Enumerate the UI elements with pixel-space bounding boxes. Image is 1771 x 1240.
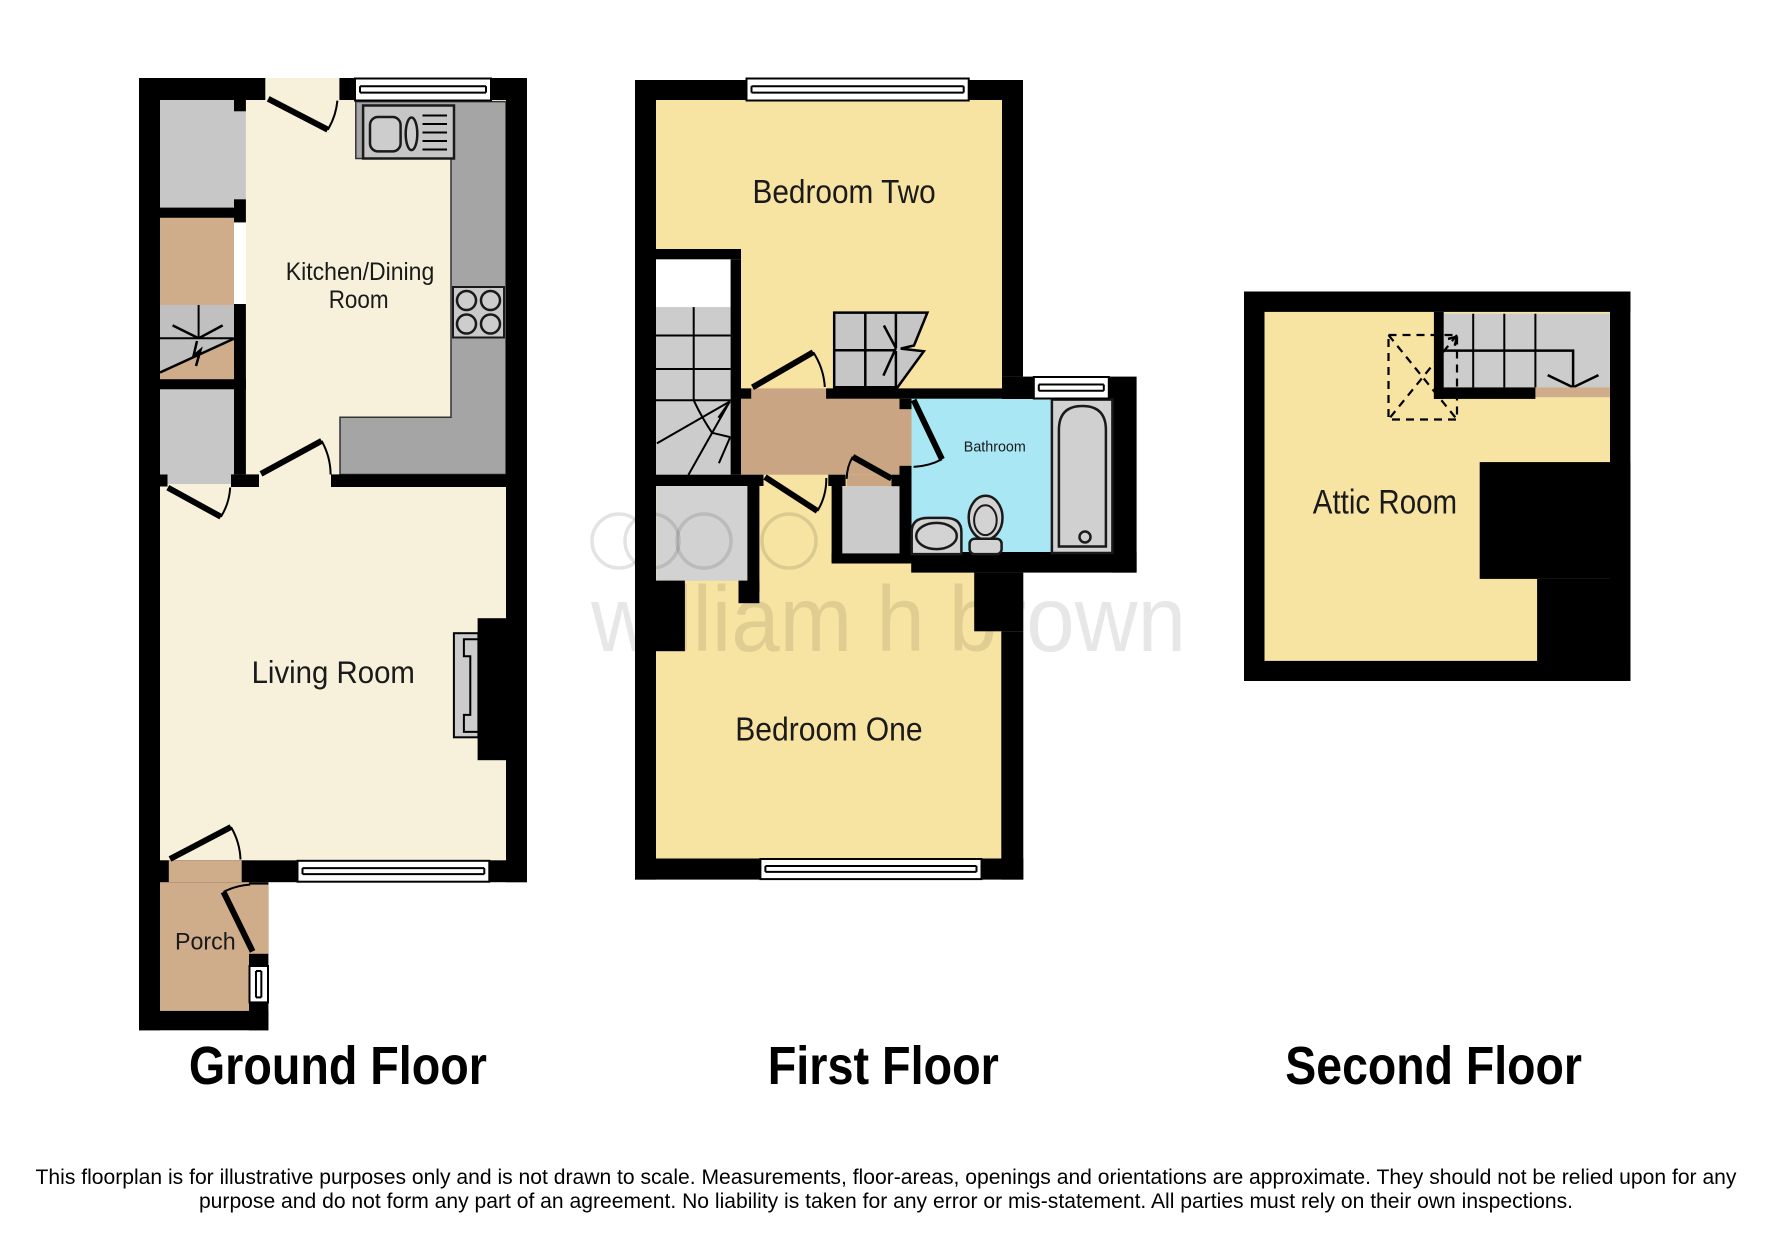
svg-text:This floorplan is for illustra: This floorplan is for illustrative purpo…: [36, 1166, 1737, 1189]
svg-text:Second Floor: Second Floor: [1285, 1037, 1582, 1096]
svg-text:First Floor: First Floor: [768, 1037, 999, 1096]
svg-text:Bathroom: Bathroom: [964, 440, 1026, 456]
svg-text:Kitchen/Dining: Kitchen/Dining: [286, 258, 435, 286]
svg-text:Bedroom One: Bedroom One: [735, 712, 922, 749]
svg-text:Ground Floor: Ground Floor: [189, 1037, 487, 1096]
svg-text:Room: Room: [329, 286, 389, 314]
svg-text:william h brown: william h brown: [590, 567, 1186, 671]
svg-text:Living Room: Living Room: [252, 654, 415, 690]
svg-text:purpose and do not form any pa: purpose and do not form any part of an a…: [199, 1190, 1573, 1213]
svg-text:Attic Room: Attic Room: [1313, 484, 1457, 522]
svg-text:Porch: Porch: [175, 929, 236, 956]
svg-text:Bedroom Two: Bedroom Two: [753, 174, 936, 211]
